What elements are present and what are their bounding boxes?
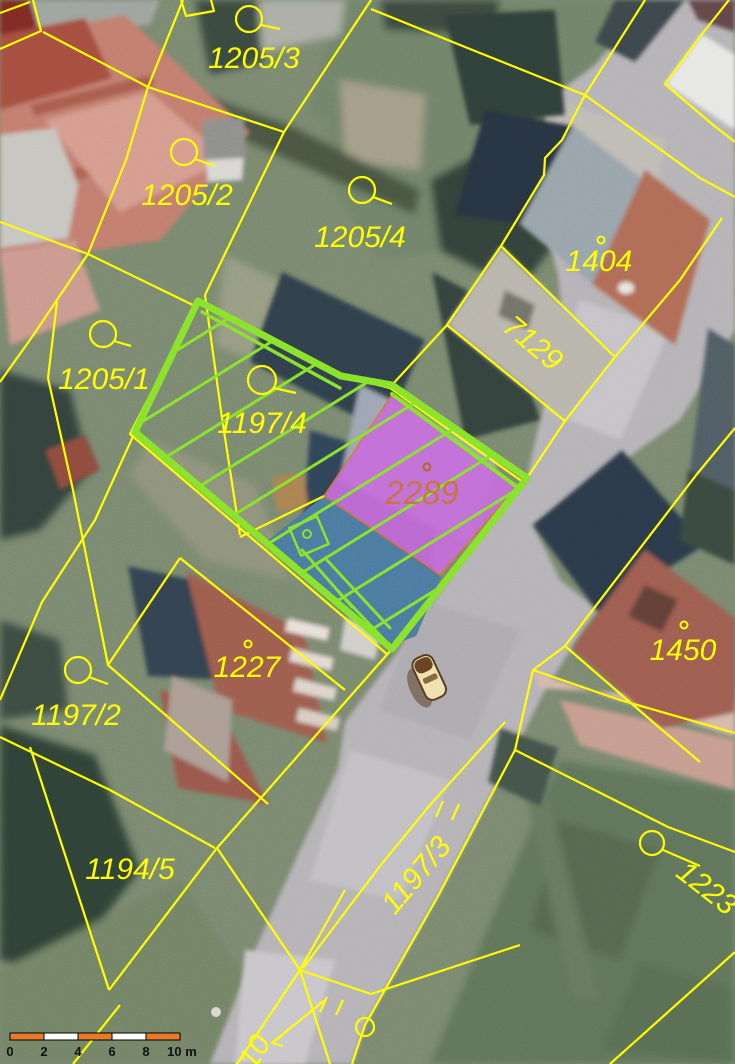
svg-text:1194/5: 1194/5 <box>85 853 175 886</box>
svg-text:1205/2: 1205/2 <box>141 179 233 212</box>
svg-text:4: 4 <box>74 1044 82 1059</box>
svg-text:6: 6 <box>108 1044 115 1059</box>
svg-text:2: 2 <box>40 1044 47 1059</box>
svg-text:1450: 1450 <box>650 634 717 667</box>
svg-text:1227: 1227 <box>214 651 282 684</box>
svg-text:10 m: 10 m <box>167 1044 197 1059</box>
svg-text:0: 0 <box>6 1044 13 1059</box>
svg-text:2289: 2289 <box>384 474 458 511</box>
svg-text:1404: 1404 <box>566 245 633 278</box>
svg-text:1197/2: 1197/2 <box>31 699 121 732</box>
svg-text:1205/1: 1205/1 <box>58 363 150 396</box>
svg-text:1205/4: 1205/4 <box>314 221 406 254</box>
svg-text:1197/4: 1197/4 <box>217 407 307 440</box>
svg-text:1205/3: 1205/3 <box>208 42 300 75</box>
svg-text:8: 8 <box>142 1044 149 1059</box>
